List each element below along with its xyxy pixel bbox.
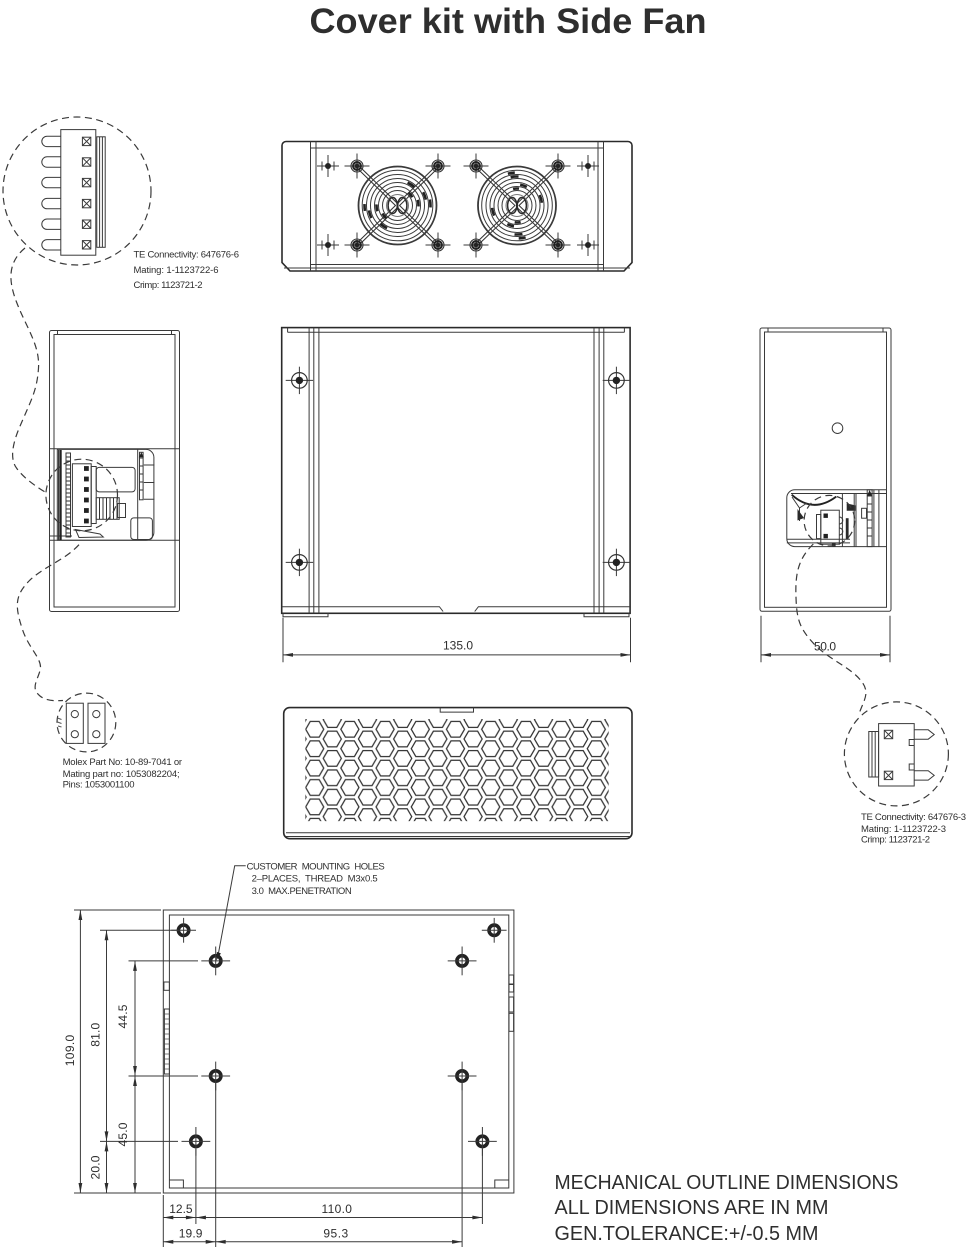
svg-text:45.0: 45.0 — [116, 1122, 130, 1146]
svg-text:GEN.TOLERANCE:+/-0.5 MM: GEN.TOLERANCE:+/-0.5 MM — [555, 1222, 819, 1245]
svg-text:44.5: 44.5 — [116, 1004, 130, 1028]
svg-text:Pins: 1053001100: Pins: 1053001100 — [63, 780, 135, 791]
svg-text:TE Connectivity: 647676-3: TE Connectivity: 647676-3 — [861, 812, 966, 823]
svg-text:Crimp: 1123721-2: Crimp: 1123721-2 — [134, 280, 203, 291]
svg-text:135.0: 135.0 — [443, 639, 473, 653]
svg-text:81.0: 81.0 — [88, 1022, 102, 1046]
svg-text:2–PLACES, THREAD M3x0.5: 2–PLACES, THREAD M3x0.5 — [252, 874, 378, 885]
svg-text:CUSTOMER MOUNTING HOLES: CUSTOMER MOUNTING HOLES — [247, 862, 385, 873]
svg-text:Mating: 1-1123722-6: Mating: 1-1123722-6 — [134, 265, 219, 276]
svg-text:MECHANICAL OUTLINE DIMENSIONS: MECHANICAL OUTLINE DIMENSIONS — [555, 1171, 899, 1194]
svg-text:Mating part no: 1053082204;: Mating part no: 1053082204; — [63, 769, 180, 780]
svg-text:110.0: 110.0 — [321, 1202, 352, 1216]
svg-text:50.0: 50.0 — [814, 640, 836, 654]
svg-text:Mating: 1-1123722-3: Mating: 1-1123722-3 — [861, 824, 946, 835]
svg-text:20.0: 20.0 — [88, 1155, 102, 1179]
svg-text:109.0: 109.0 — [63, 1034, 77, 1066]
svg-text:95.3: 95.3 — [323, 1226, 348, 1240]
svg-text:19.9: 19.9 — [179, 1226, 203, 1240]
svg-text:3.0 MAX.PENETRATION: 3.0 MAX.PENETRATION — [252, 886, 352, 897]
svg-text:Crimp: 1123721-2: Crimp: 1123721-2 — [861, 835, 930, 846]
svg-text:TE Connectivity: 647676-6: TE Connectivity: 647676-6 — [134, 250, 240, 261]
svg-text:Cover kit with Side Fan: Cover kit with Side Fan — [310, 1, 707, 41]
svg-text:12.5: 12.5 — [169, 1202, 193, 1216]
svg-text:ALL DIMENSIONS ARE IN MM: ALL DIMENSIONS ARE IN MM — [555, 1196, 829, 1219]
svg-text:Molex Part No: 10-89-7041 or: Molex Part No: 10-89-7041 or — [63, 757, 183, 768]
